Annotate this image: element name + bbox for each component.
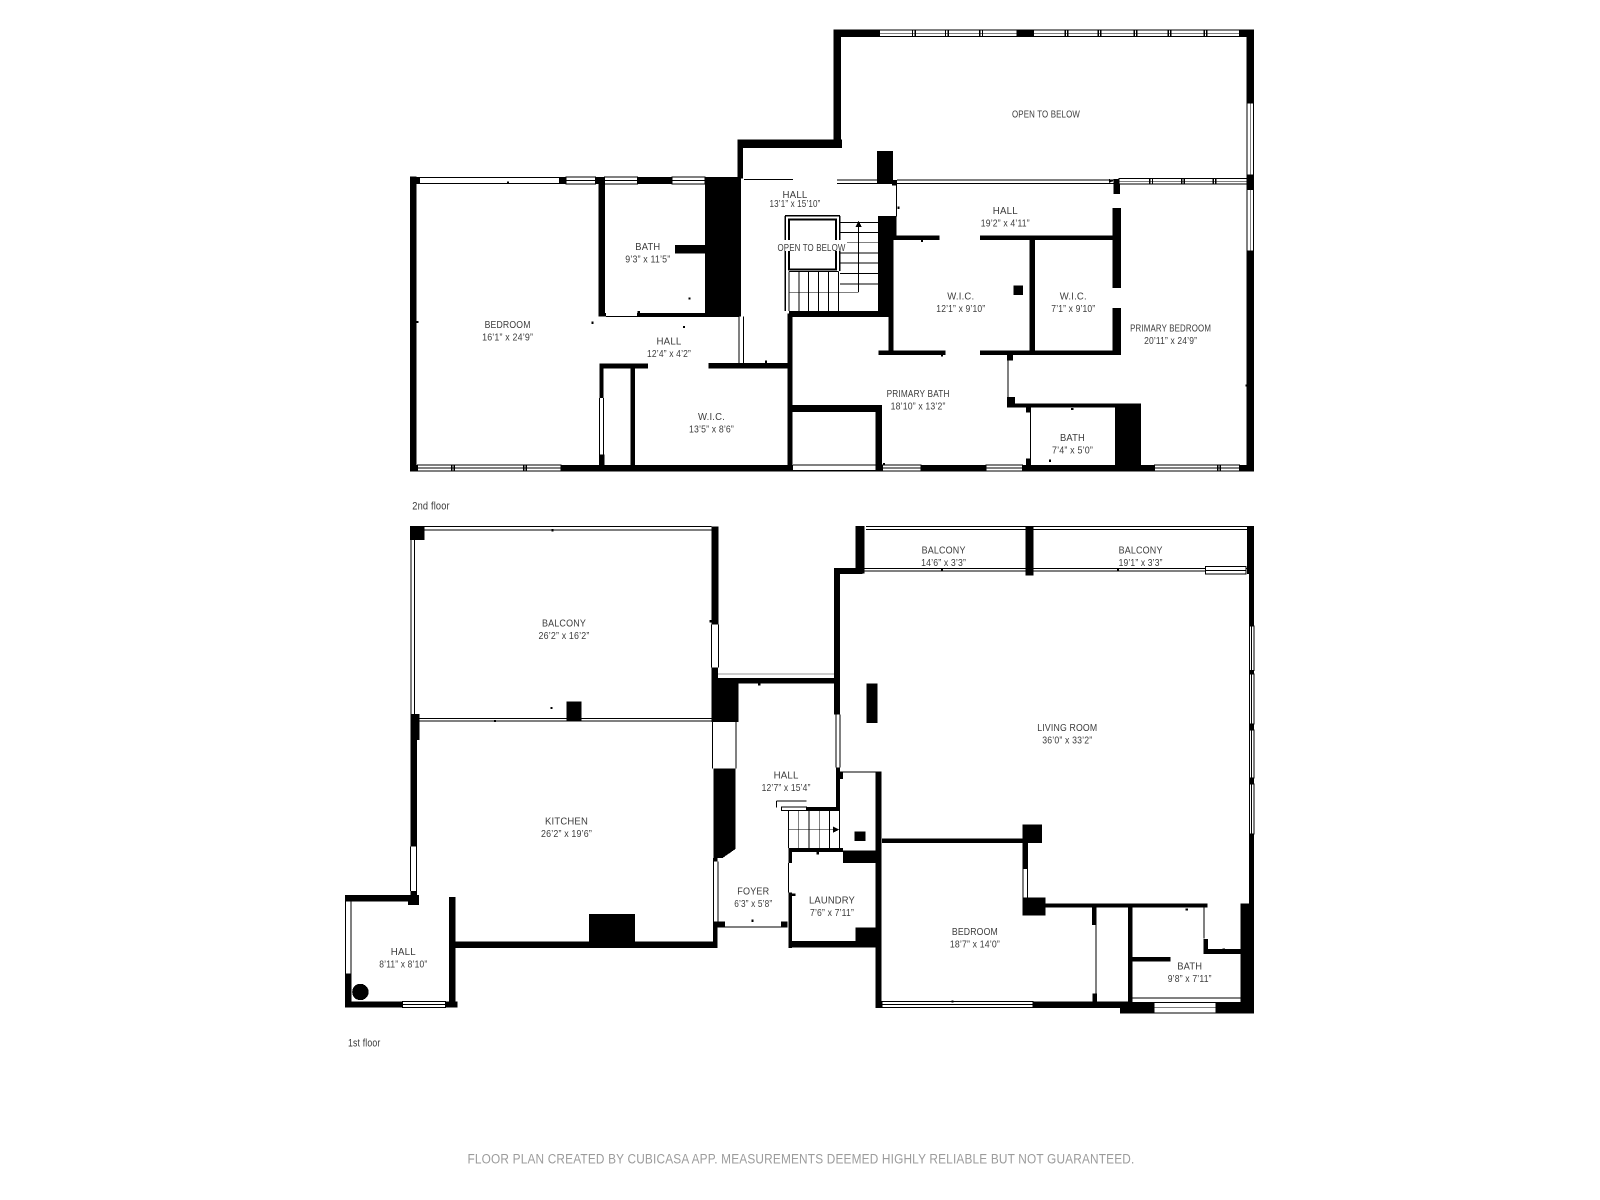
svg-text:HALL: HALL xyxy=(993,205,1018,217)
svg-text:BALCONY: BALCONY xyxy=(1119,545,1163,557)
svg-text:BEDROOM: BEDROOM xyxy=(952,926,998,938)
svg-text:18’7” x 14’0”: 18’7” x 14’0” xyxy=(950,939,1000,951)
svg-text:14’6” x 3’3”: 14’6” x 3’3” xyxy=(921,557,966,569)
svg-text:W.I.C.: W.I.C. xyxy=(1060,291,1087,303)
svg-text:FOYER: FOYER xyxy=(737,886,769,898)
svg-text:FLOOR PLAN CREATED BY CUBICASA: FLOOR PLAN CREATED BY CUBICASA APP. MEAS… xyxy=(468,1152,1135,1167)
svg-text:7’6” x 7’11”: 7’6” x 7’11” xyxy=(810,907,854,919)
svg-text:W.I.C.: W.I.C. xyxy=(947,291,974,303)
svg-text:7’1” x 9’10”: 7’1” x 9’10” xyxy=(1051,303,1095,315)
svg-text:KITCHEN: KITCHEN xyxy=(545,816,588,828)
svg-text:W.I.C.: W.I.C. xyxy=(698,411,725,423)
svg-text:BATH: BATH xyxy=(635,241,660,253)
svg-text:12’4” x 4’2”: 12’4” x 4’2” xyxy=(647,348,691,360)
svg-text:26’2” x 19’6”: 26’2” x 19’6” xyxy=(541,828,592,840)
svg-text:HALL: HALL xyxy=(391,946,416,958)
svg-text:BALCONY: BALCONY xyxy=(542,618,586,630)
svg-text:13’5” x 8’6”: 13’5” x 8’6” xyxy=(689,424,734,436)
svg-text:19’1” x 3’3”: 19’1” x 3’3” xyxy=(1119,557,1163,569)
svg-text:LAUNDRY: LAUNDRY xyxy=(809,895,855,907)
svg-text:BALCONY: BALCONY xyxy=(922,545,966,557)
svg-text:12’1” x 9’10”: 12’1” x 9’10” xyxy=(936,303,985,315)
svg-text:26’2” x 16’2”: 26’2” x 16’2” xyxy=(539,630,590,642)
svg-text:PRIMARY BATH: PRIMARY BATH xyxy=(887,388,950,400)
svg-text:9’8” x 7’11”: 9’8” x 7’11” xyxy=(1168,973,1212,985)
svg-text:BATH: BATH xyxy=(1177,961,1202,973)
svg-text:HALL: HALL xyxy=(657,336,682,348)
svg-text:7’4” x 5’0”: 7’4” x 5’0” xyxy=(1052,445,1093,457)
svg-text:2nd floor: 2nd floor xyxy=(412,501,450,513)
svg-text:20’11” x 24’9”: 20’11” x 24’9” xyxy=(1144,335,1197,347)
svg-text:LIVING ROOM: LIVING ROOM xyxy=(1037,722,1097,734)
svg-text:36’0” x 33’2”: 36’0” x 33’2” xyxy=(1042,735,1092,747)
svg-text:1st floor: 1st floor xyxy=(348,1038,381,1050)
svg-text:9’3” x 11’5”: 9’3” x 11’5” xyxy=(625,254,670,266)
svg-text:HALL: HALL xyxy=(774,770,799,782)
svg-text:16’1” x 24’9”: 16’1” x 24’9” xyxy=(482,332,533,344)
svg-text:OPEN TO BELOW: OPEN TO BELOW xyxy=(778,242,846,254)
svg-text:6’3” x 5’8”: 6’3” x 5’8” xyxy=(734,898,772,910)
svg-text:12’7” x 15’4”: 12’7” x 15’4” xyxy=(762,782,811,794)
svg-text:OPEN TO BELOW: OPEN TO BELOW xyxy=(1012,109,1080,121)
svg-text:19’2” x 4’11”: 19’2” x 4’11” xyxy=(981,218,1030,230)
svg-text:8’11” x 8’10”: 8’11” x 8’10” xyxy=(379,959,427,971)
svg-text:PRIMARY BEDROOM: PRIMARY BEDROOM xyxy=(1130,323,1211,335)
svg-text:BEDROOM: BEDROOM xyxy=(485,319,531,331)
svg-text:13’1” x 15’10”: 13’1” x 15’10” xyxy=(770,198,821,210)
svg-text:BATH: BATH xyxy=(1060,432,1085,444)
svg-text:18’10” x 13’2”: 18’10” x 13’2” xyxy=(891,401,946,413)
